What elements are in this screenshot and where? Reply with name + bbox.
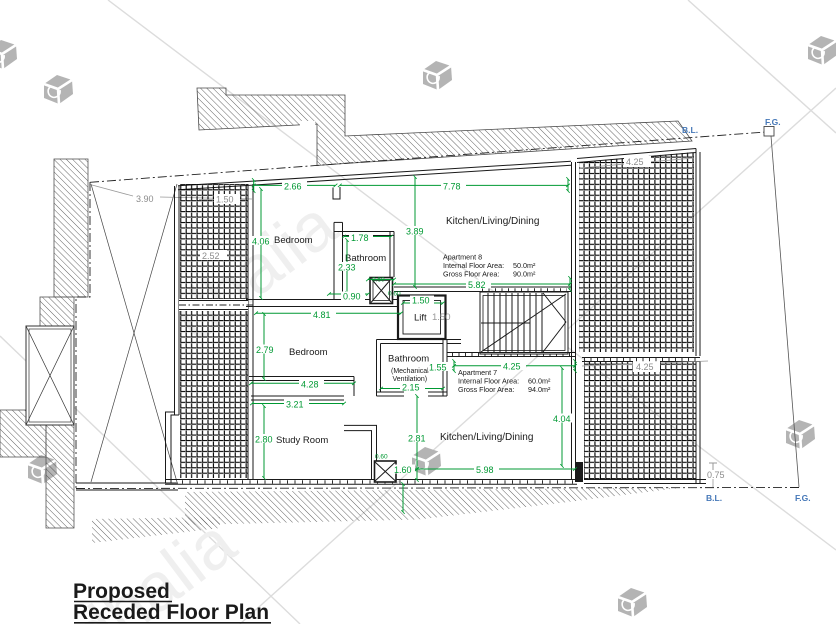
svg-text:Proposed: Proposed	[73, 580, 170, 603]
svg-text:0.75: 0.75	[707, 470, 725, 480]
svg-text:2.15: 2.15	[402, 383, 420, 393]
svg-text:5.98: 5.98	[476, 465, 494, 475]
svg-text:4.25: 4.25	[626, 157, 644, 167]
svg-text:3.89: 3.89	[406, 227, 424, 237]
svg-text:2.79: 2.79	[256, 345, 274, 355]
svg-text:Study Room: Study Room	[276, 435, 328, 446]
svg-text:7.78: 7.78	[443, 182, 461, 192]
svg-text:2.52: 2.52	[202, 251, 220, 261]
svg-text:Bedroom: Bedroom	[289, 347, 328, 358]
svg-text:94.0m²: 94.0m²	[528, 385, 551, 394]
svg-text:Kitchen/Living/Dining: Kitchen/Living/Dining	[446, 216, 539, 227]
svg-text:F.G.: F.G.	[795, 493, 811, 503]
svg-text:Kitchen/Living/Dining: Kitchen/Living/Dining	[440, 432, 533, 443]
svg-text:4.04: 4.04	[553, 414, 571, 424]
svg-text:1.55: 1.55	[429, 363, 447, 373]
svg-text:F.G.: F.G.	[765, 117, 781, 127]
svg-text:4.25: 4.25	[503, 362, 521, 372]
svg-text:1.78: 1.78	[351, 233, 369, 243]
svg-text:Bathroom: Bathroom	[388, 354, 429, 365]
svg-text:Gross Floor Area:: Gross Floor Area:	[458, 385, 514, 394]
svg-text:Gross Floor Area:: Gross Floor Area:	[443, 270, 499, 279]
svg-text:0.90: 0.90	[343, 292, 361, 302]
svg-text:0.60: 0.60	[375, 454, 388, 461]
svg-text:4.06: 4.06	[252, 237, 270, 247]
svg-text:Bedroom: Bedroom	[274, 235, 313, 246]
svg-text:0.60: 0.60	[372, 277, 385, 284]
svg-text:4.81: 4.81	[313, 310, 331, 320]
svg-text:0.60: 0.60	[388, 291, 401, 298]
svg-text:1.60: 1.60	[394, 465, 412, 475]
svg-text:2.33: 2.33	[338, 263, 356, 273]
svg-text:4.28: 4.28	[301, 380, 319, 390]
svg-text:90.0m²: 90.0m²	[513, 270, 536, 279]
svg-text:1.50: 1.50	[216, 195, 234, 205]
svg-text:1.50: 1.50	[432, 312, 451, 323]
svg-text:2.81: 2.81	[408, 434, 426, 444]
svg-text:5.82: 5.82	[468, 280, 486, 290]
svg-text:1.50: 1.50	[412, 296, 430, 306]
svg-text:Lift: Lift	[414, 313, 427, 324]
svg-text:B.L.: B.L.	[682, 125, 698, 135]
svg-text:2.80: 2.80	[255, 435, 273, 445]
svg-text:2.66: 2.66	[284, 182, 302, 192]
svg-text:B.L.: B.L.	[706, 493, 722, 503]
svg-text:(Mechanical: (Mechanical	[391, 368, 429, 375]
svg-text:Receded Floor Plan: Receded Floor Plan	[73, 601, 269, 624]
svg-text:3.90: 3.90	[136, 194, 154, 204]
svg-text:3.21: 3.21	[286, 400, 304, 410]
svg-text:4.25: 4.25	[636, 362, 654, 372]
